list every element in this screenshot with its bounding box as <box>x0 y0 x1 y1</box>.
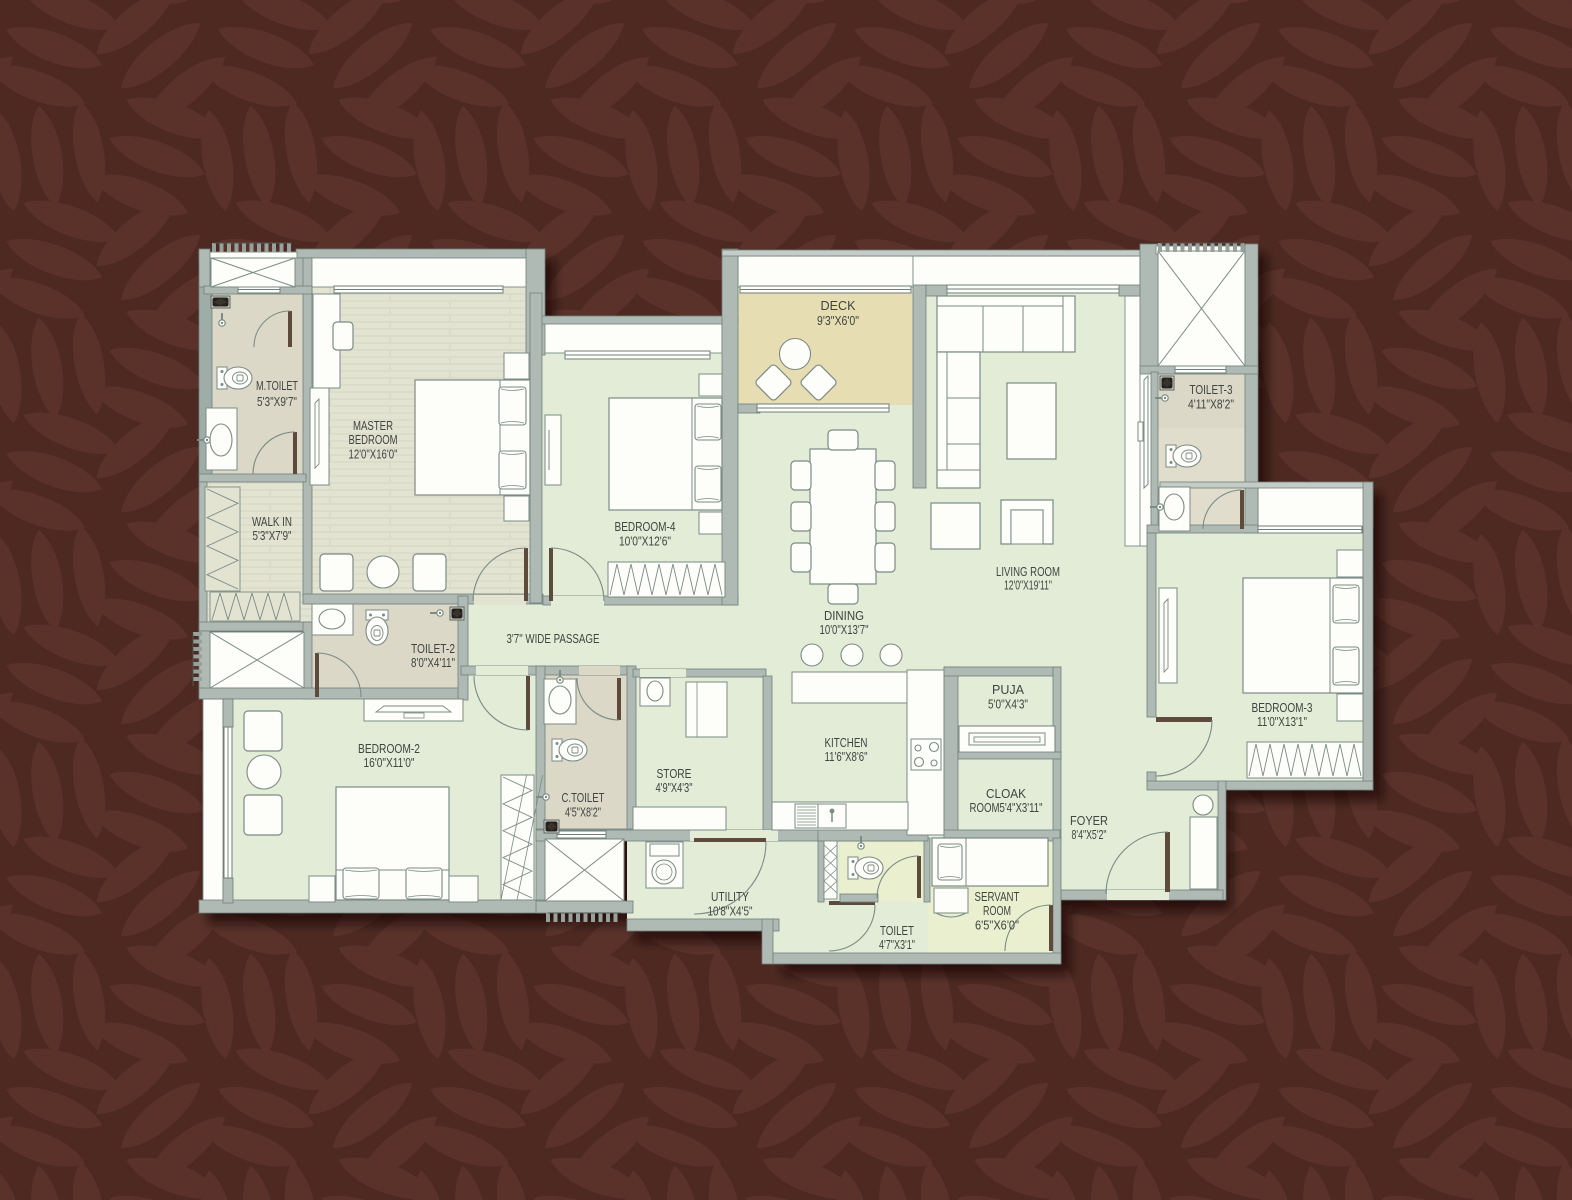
svg-text:STORE4'9"X4'3": STORE4'9"X4'3" <box>656 767 693 795</box>
svg-text:3'7" WIDE PASSAGE: 3'7" WIDE PASSAGE <box>507 632 600 646</box>
svg-text:TOILET-28'0"X4'11": TOILET-28'0"X4'11" <box>411 642 455 670</box>
svg-text:MASTERBEDROOM12'0"X16'0": MASTERBEDROOM12'0"X16'0" <box>349 419 398 461</box>
svg-text:BEDROOM-410'0"X12'6": BEDROOM-410'0"X12'6" <box>615 520 676 549</box>
svg-text:LIVING ROOM12'0"X19'11": LIVING ROOM12'0"X19'11" <box>996 565 1060 593</box>
svg-text:BEDROOM-216'0"X11'0": BEDROOM-216'0"X11'0" <box>358 742 420 770</box>
svg-text:DINING10'0"X13'7": DINING10'0"X13'7" <box>820 609 869 637</box>
svg-text:PUJA5'0"X4'3": PUJA5'0"X4'3" <box>988 683 1028 712</box>
svg-text:WALK IN5'3"X7'9": WALK IN5'3"X7'9" <box>252 515 292 543</box>
svg-text:UTILITY10'8"X4'5": UTILITY10'8"X4'5" <box>708 890 753 919</box>
svg-text:TOILET-34'11"X8'2": TOILET-34'11"X8'2" <box>1188 383 1234 412</box>
svg-text:KITCHEN11'6"X8'6": KITCHEN11'6"X8'6" <box>825 736 868 764</box>
svg-text:TOILET4'7"X3'1": TOILET4'7"X3'1" <box>879 924 915 952</box>
svg-text:BEDROOM-311'0"X13'1": BEDROOM-311'0"X13'1" <box>1252 701 1313 729</box>
svg-text:C.TOILET4'5"X8'2": C.TOILET4'5"X8'2" <box>562 791 605 820</box>
svg-text:FOYER8'4"X5'2": FOYER8'4"X5'2" <box>1070 814 1108 842</box>
svg-text:DECK9'3"X6'0": DECK9'3"X6'0" <box>817 299 859 328</box>
